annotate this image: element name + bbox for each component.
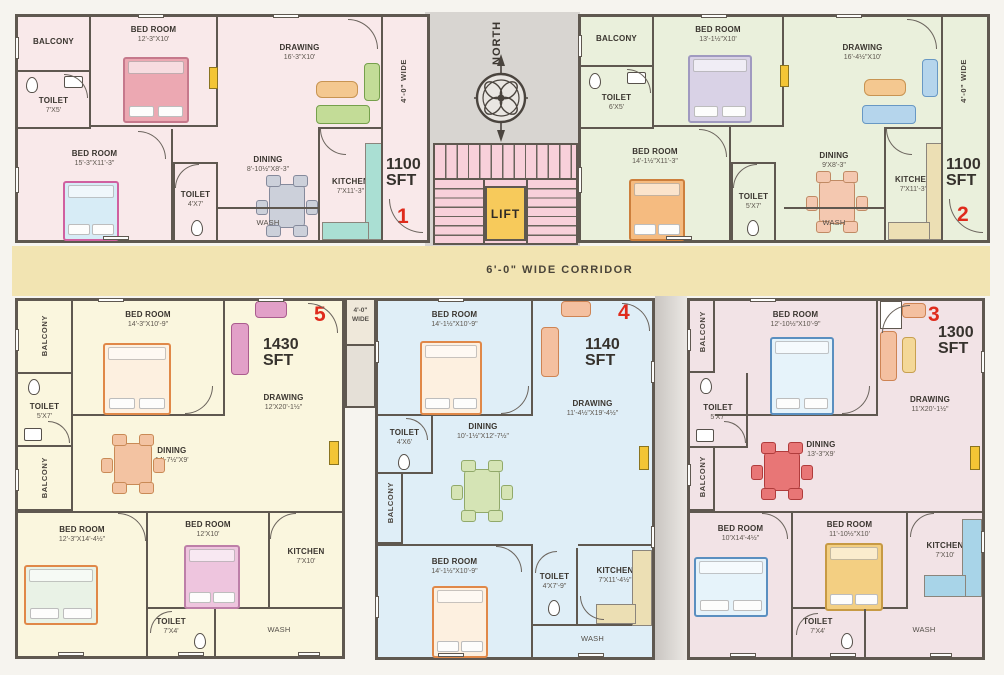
bed-pillow bbox=[830, 594, 853, 605]
room-dims: 11'-4½"X19'-4½" bbox=[533, 410, 652, 418]
sofa bbox=[880, 331, 897, 381]
window bbox=[578, 653, 604, 657]
unit-5: BALCONY TOILET 5'X7' BALCONY BED ROOM 14… bbox=[15, 298, 345, 659]
window bbox=[258, 298, 284, 302]
window bbox=[438, 653, 464, 657]
sofa bbox=[231, 323, 249, 375]
room-name: DRAWING bbox=[533, 399, 652, 409]
unit3-area: 1300 SFT bbox=[938, 325, 974, 358]
window bbox=[666, 236, 692, 240]
bed-pillow bbox=[92, 224, 114, 235]
unit2-bedroom-1: BED ROOM 13'-1½"X10' bbox=[654, 17, 784, 127]
chair bbox=[761, 442, 776, 454]
bed bbox=[688, 55, 752, 123]
unit1-passage: 4'-0" WIDE 1100 SFT 1 bbox=[381, 17, 427, 240]
room-dims: 16'-3"X10' bbox=[218, 54, 381, 62]
chair bbox=[801, 465, 813, 480]
bed bbox=[770, 337, 834, 415]
window bbox=[651, 526, 655, 548]
toilet-icon bbox=[589, 73, 601, 89]
bed bbox=[694, 557, 768, 617]
bed-headboard bbox=[693, 59, 747, 72]
room-name: DINING bbox=[218, 155, 318, 165]
chair bbox=[266, 175, 281, 187]
bed-pillow bbox=[129, 106, 155, 117]
bed-pillow bbox=[109, 398, 135, 409]
bed-headboard bbox=[189, 549, 235, 562]
passage-line2: WIDE bbox=[352, 316, 369, 323]
room-dims: 8'-10½"X8'-3" bbox=[218, 166, 318, 174]
area-unit: SFT bbox=[585, 352, 615, 369]
bed-pillow bbox=[733, 600, 762, 611]
coffee-table bbox=[864, 79, 906, 96]
unit4-balcony: BALCONY bbox=[378, 474, 403, 544]
area-value: 1300 bbox=[938, 324, 974, 341]
bed-headboard bbox=[29, 569, 93, 582]
bed-pillow bbox=[855, 594, 878, 605]
window bbox=[981, 351, 985, 373]
room-name: WASH bbox=[533, 634, 652, 643]
stair-treads-left bbox=[435, 180, 485, 243]
unit-3: BALCONY BED ROOM 12'-10½"X10'-9" DRAWING… bbox=[687, 298, 985, 660]
unit3-bedroom-3: BED ROOM 11'-10½"X10' bbox=[793, 511, 908, 609]
room-dims: 11'X20'-1½" bbox=[878, 406, 982, 414]
window bbox=[836, 14, 862, 18]
room-name: TOILET bbox=[733, 192, 774, 202]
room-name: BED ROOM bbox=[654, 25, 782, 35]
window bbox=[58, 652, 84, 656]
bed-pillow bbox=[694, 106, 719, 117]
toilet-icon bbox=[28, 379, 40, 395]
toilet-icon bbox=[398, 454, 410, 470]
room-name: BALCONY bbox=[18, 37, 89, 47]
chair bbox=[788, 442, 803, 454]
area-unit: SFT bbox=[386, 172, 416, 189]
area-unit: SFT bbox=[263, 352, 293, 369]
unit-4: BED ROOM 14'-1½"X10'-9" DRAWING 11'-4½"X… bbox=[375, 298, 655, 660]
room-name: BALCONY bbox=[386, 482, 395, 523]
unit3-balcony-1: BALCONY bbox=[690, 301, 715, 373]
passage-width-label: 4'-0" WIDE bbox=[959, 59, 968, 103]
chair bbox=[293, 175, 308, 187]
unit1-bedroom-1: BED ROOM 12'-3"X10' bbox=[91, 17, 218, 127]
bed-headboard bbox=[830, 547, 878, 560]
bed bbox=[123, 57, 189, 123]
sofa bbox=[541, 327, 559, 377]
unit-1: BALCONY TOILET 7'X5' BED ROOM 12'-3"X10'… bbox=[15, 14, 430, 243]
room-name: WASH bbox=[866, 625, 982, 634]
stair-treads-right bbox=[526, 180, 576, 243]
room-name: KITCHEN bbox=[270, 547, 342, 557]
bed bbox=[184, 545, 240, 609]
area-value: 1140 bbox=[585, 336, 620, 353]
room-dims: 16'-4½"X10' bbox=[784, 54, 941, 62]
unit4-drawing: DRAWING 11'-4½"X19'-4½" 1140 SFT bbox=[533, 301, 652, 511]
coffee-table bbox=[316, 81, 358, 98]
room-name: TOILET bbox=[533, 572, 576, 582]
bed-pillow bbox=[461, 641, 483, 652]
room-name: TOILET bbox=[18, 402, 71, 412]
unit5-balcony-1: BALCONY bbox=[18, 301, 73, 374]
window bbox=[15, 329, 19, 351]
passage-line1: 4'-0" bbox=[353, 307, 367, 314]
bed bbox=[103, 343, 171, 415]
area-unit: SFT bbox=[938, 340, 968, 357]
bed-headboard bbox=[425, 345, 477, 358]
bed-pillow bbox=[700, 600, 729, 611]
window bbox=[15, 37, 19, 59]
floor-plan-canvas: 6'-0" WIDE CORRIDOR NORTH LIFT 4'-0" WID… bbox=[0, 0, 1004, 675]
window bbox=[687, 464, 691, 486]
staircase: LIFT bbox=[433, 143, 578, 245]
window bbox=[930, 653, 952, 657]
bed bbox=[63, 181, 119, 241]
sofa-chair bbox=[364, 63, 380, 101]
window bbox=[375, 596, 379, 618]
room-name: TOILET bbox=[581, 93, 652, 103]
dining-set bbox=[753, 442, 811, 500]
window bbox=[687, 329, 691, 351]
room-name: TOILET bbox=[690, 403, 746, 413]
chair bbox=[112, 482, 127, 494]
chair bbox=[488, 460, 503, 472]
room-name: TOILET bbox=[175, 190, 216, 200]
room-name: BED ROOM bbox=[148, 520, 268, 530]
chair bbox=[139, 434, 154, 446]
room-dims: 12'X10' bbox=[148, 531, 268, 539]
room-dims: 12'-3"X10' bbox=[91, 36, 216, 44]
room-dims: 11'-10½"X10' bbox=[793, 531, 906, 539]
bed-headboard bbox=[108, 347, 166, 360]
unit-2: BALCONY TOILET 6'X5' BED ROOM 13'-1½"X10… bbox=[578, 14, 990, 243]
unit5-wash: WASH bbox=[216, 609, 342, 656]
toilet-icon bbox=[747, 220, 759, 236]
bed-pillow bbox=[437, 641, 459, 652]
window bbox=[15, 167, 19, 193]
unit1-area: 1100 SFT bbox=[386, 157, 421, 190]
passage-shaft bbox=[345, 346, 376, 408]
chair bbox=[101, 458, 113, 473]
window bbox=[578, 167, 582, 193]
room-name: DRAWING bbox=[225, 393, 342, 403]
sofa bbox=[561, 301, 591, 317]
room-dims: 9'X8'-3" bbox=[784, 162, 884, 170]
window bbox=[730, 653, 756, 657]
toilet-icon bbox=[194, 633, 206, 649]
room-dims: 7'X10' bbox=[270, 558, 342, 566]
corridor-label: 6'-0" WIDE CORRIDOR bbox=[486, 264, 633, 276]
bed-pillow bbox=[804, 398, 829, 409]
chair bbox=[112, 434, 127, 446]
unit2-balcony: BALCONY bbox=[581, 17, 654, 67]
bed-pillow bbox=[425, 398, 449, 409]
room-name: WASH bbox=[216, 625, 342, 634]
unit5-area: 1430 SFT bbox=[263, 337, 299, 370]
room-dims: 15'-3"X11'-3" bbox=[18, 160, 171, 168]
room-name: BALCONY bbox=[581, 34, 652, 44]
bed-headboard bbox=[634, 183, 680, 196]
bed-pillow bbox=[158, 106, 184, 117]
stair-treads-top bbox=[435, 145, 576, 180]
unit2-wash: WASH bbox=[784, 207, 884, 240]
bed-pillow bbox=[139, 398, 165, 409]
chair bbox=[788, 488, 803, 500]
room-name: WASH bbox=[784, 218, 884, 227]
kitchen-counter bbox=[322, 222, 369, 240]
bed-pillow bbox=[30, 608, 59, 619]
passage-4ft-wide: 4'-0" WIDE bbox=[345, 298, 376, 346]
ottoman bbox=[902, 337, 916, 373]
unit3-balcony-2: BALCONY bbox=[690, 448, 715, 511]
room-name: DINING bbox=[784, 151, 884, 161]
bed bbox=[629, 179, 685, 241]
window bbox=[178, 652, 204, 656]
room-name: BALCONY bbox=[698, 311, 707, 352]
bed-pillow bbox=[453, 398, 477, 409]
chair bbox=[451, 485, 463, 500]
room-dims: 14'-1½"X10'-9" bbox=[378, 321, 531, 329]
sofa-chair bbox=[922, 59, 938, 97]
toilet-icon bbox=[548, 600, 560, 616]
unit4-dining: DINING 10'-1½"X12'-7½" bbox=[433, 416, 533, 544]
dining-table bbox=[464, 469, 500, 513]
bed-pillow bbox=[722, 106, 747, 117]
unit3-number: 3 bbox=[928, 303, 940, 327]
unit-gap-background bbox=[655, 296, 687, 660]
bed-headboard bbox=[775, 341, 829, 354]
window bbox=[15, 469, 19, 491]
bed-pillow bbox=[189, 592, 211, 603]
room-name: BED ROOM bbox=[378, 310, 531, 320]
room-name: BED ROOM bbox=[91, 25, 216, 35]
room-name: DRAWING bbox=[878, 395, 982, 405]
room-name: BED ROOM bbox=[73, 310, 223, 320]
toilet-icon bbox=[191, 220, 203, 236]
room-dims: 4'X7' bbox=[175, 201, 216, 209]
room-name: BALCONY bbox=[698, 456, 707, 497]
window bbox=[578, 35, 582, 57]
window bbox=[830, 653, 856, 657]
bed bbox=[420, 341, 482, 415]
bed bbox=[825, 543, 883, 611]
chair bbox=[843, 171, 858, 183]
room-dims: 14'-3"X10'-9" bbox=[73, 321, 223, 329]
bed-headboard bbox=[68, 185, 114, 198]
window bbox=[750, 298, 776, 302]
room-dims: 4'X7'-9" bbox=[533, 583, 576, 591]
room-dims: 13'-1½"X10' bbox=[654, 36, 782, 44]
bed bbox=[24, 565, 98, 625]
lift: LIFT bbox=[485, 186, 526, 241]
chair bbox=[761, 488, 776, 500]
window bbox=[273, 14, 299, 18]
bed-headboard bbox=[699, 561, 763, 574]
area-unit: SFT bbox=[946, 172, 976, 189]
door-arc bbox=[389, 199, 423, 233]
bed-pillow bbox=[658, 224, 680, 235]
dining-table bbox=[764, 451, 800, 491]
unit4-area: 1140 SFT bbox=[585, 337, 620, 370]
room-dims: 5'X7' bbox=[18, 413, 71, 421]
window bbox=[375, 341, 379, 363]
room-name: WASH bbox=[218, 218, 318, 227]
bed-pillow bbox=[63, 608, 92, 619]
window bbox=[651, 361, 655, 383]
unit1-balcony: BALCONY bbox=[18, 17, 91, 72]
window bbox=[138, 14, 164, 18]
dining-set bbox=[103, 434, 163, 494]
bed-pillow bbox=[634, 224, 656, 235]
area-value: 1100 bbox=[386, 156, 421, 173]
area-value: 1100 bbox=[946, 156, 981, 173]
room-dims: 12'-10½"X10'-9" bbox=[715, 321, 876, 329]
window bbox=[103, 236, 129, 240]
tv-icon bbox=[639, 446, 649, 470]
washbasin-icon bbox=[24, 428, 42, 441]
window bbox=[298, 652, 320, 656]
chair bbox=[816, 171, 831, 183]
room-dims: 12'X20'-1½" bbox=[225, 404, 342, 412]
unit2-passage: 4'-0" WIDE 1100 SFT 2 bbox=[941, 17, 987, 240]
room-dims: 14'-1½"X11'-3" bbox=[581, 158, 729, 166]
toilet-icon bbox=[26, 77, 38, 93]
unit5-bedroom-3: BED ROOM 12'X10' bbox=[148, 511, 268, 609]
room-dims: 6'X5' bbox=[581, 104, 652, 112]
chair bbox=[461, 460, 476, 472]
bed-headboard bbox=[437, 590, 483, 603]
unit5-dining: DINING 14'-7½"X9' bbox=[73, 416, 225, 511]
room-name: BALCONY bbox=[40, 315, 49, 356]
kitchen-counter bbox=[924, 575, 966, 597]
tv-icon bbox=[970, 446, 980, 470]
chair bbox=[501, 485, 513, 500]
window bbox=[98, 298, 124, 302]
dining-table bbox=[114, 443, 152, 485]
window bbox=[701, 14, 727, 18]
chair bbox=[139, 482, 154, 494]
chair bbox=[153, 458, 165, 473]
area-value: 1430 bbox=[263, 336, 299, 353]
unit5-balcony-2: BALCONY bbox=[18, 447, 73, 511]
sofa bbox=[316, 105, 370, 124]
room-dims: 10'-1½"X12'-7½" bbox=[433, 433, 533, 441]
room-dims: 7'X5' bbox=[18, 107, 89, 115]
corridor: 6'-0" WIDE CORRIDOR bbox=[12, 246, 990, 296]
toilet-icon bbox=[841, 633, 853, 649]
bed-pillow bbox=[213, 592, 235, 603]
room-name: BALCONY bbox=[40, 457, 49, 498]
bed bbox=[432, 586, 488, 658]
toilet-icon bbox=[700, 378, 712, 394]
sofa bbox=[862, 105, 916, 124]
chair bbox=[461, 510, 476, 522]
unit3-wash: WASH bbox=[866, 609, 982, 657]
tv-icon bbox=[209, 67, 218, 89]
tv-icon bbox=[329, 441, 339, 465]
unit2-area: 1100 SFT bbox=[946, 157, 981, 190]
bed-headboard bbox=[128, 61, 184, 74]
room-dims: 5'X7' bbox=[733, 203, 774, 211]
washbasin-icon bbox=[696, 429, 714, 442]
passage-width-label: 4'-0" WIDE bbox=[399, 59, 408, 103]
room-name: DINING bbox=[433, 422, 533, 432]
window bbox=[981, 531, 985, 553]
room-name: BED ROOM bbox=[793, 520, 906, 530]
tv-icon bbox=[780, 65, 789, 87]
bed-pillow bbox=[776, 398, 801, 409]
compass-rose-icon bbox=[456, 10, 546, 145]
room-name: BED ROOM bbox=[715, 310, 876, 320]
chair bbox=[488, 510, 503, 522]
dining-set bbox=[453, 460, 511, 522]
window bbox=[438, 298, 464, 302]
sofa bbox=[255, 301, 287, 318]
bed-pillow bbox=[68, 224, 90, 235]
unit1-wash: WASH bbox=[218, 207, 318, 240]
chair bbox=[751, 465, 763, 480]
door-arc bbox=[949, 199, 983, 233]
kitchen-counter bbox=[888, 222, 930, 240]
